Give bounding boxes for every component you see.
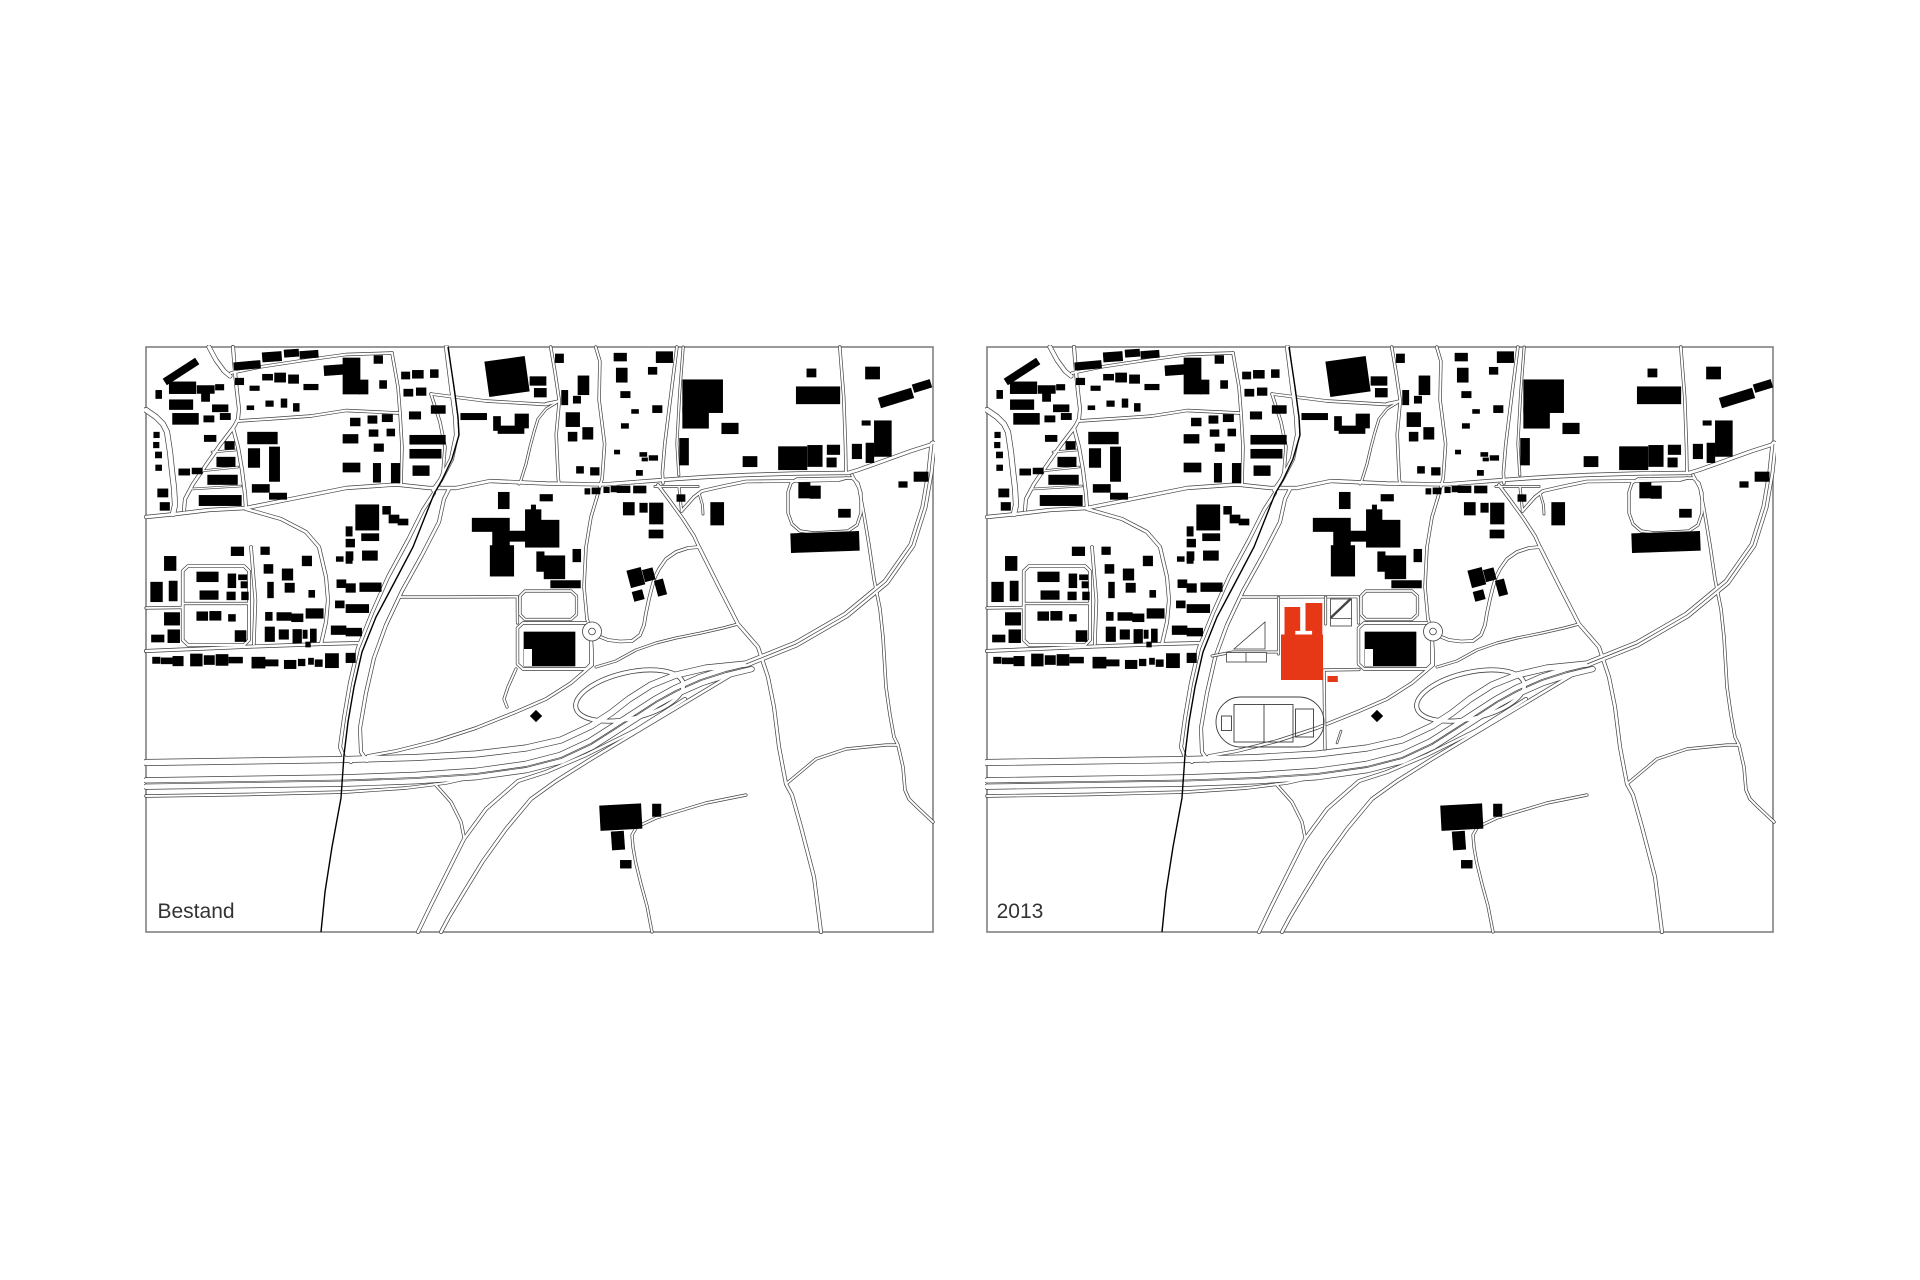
svg-text:Bestand: Bestand: [158, 900, 235, 923]
svg-text:2013: 2013: [997, 900, 1044, 923]
